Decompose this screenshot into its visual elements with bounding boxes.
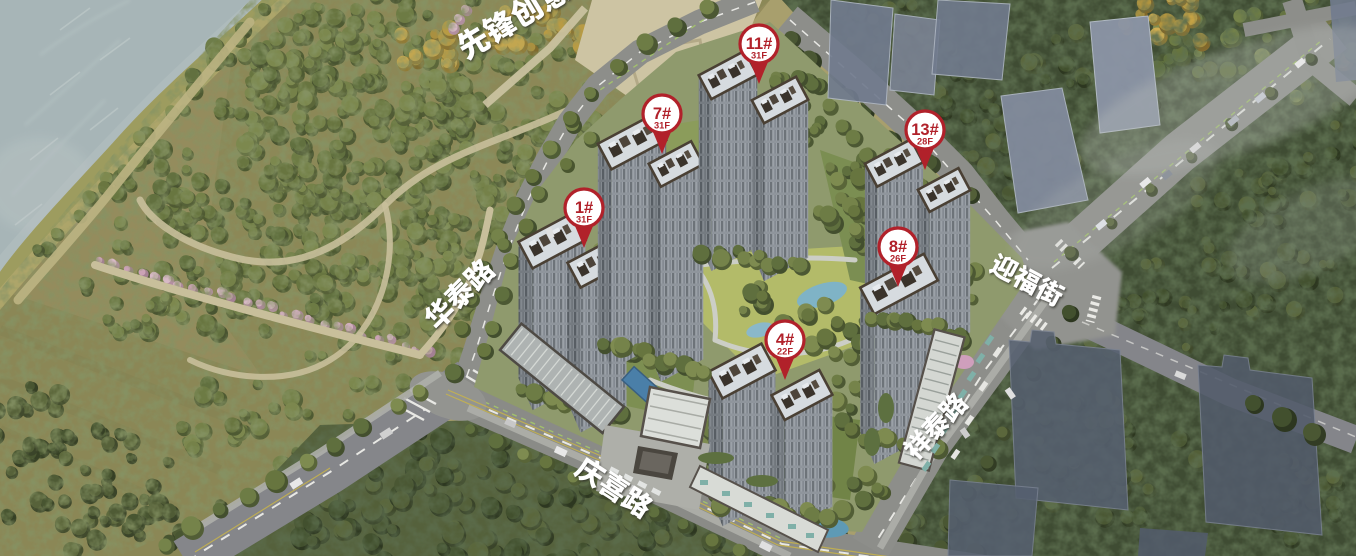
svg-text:31F: 31F	[751, 51, 767, 61]
svg-text:28F: 28F	[917, 137, 933, 147]
svg-text:26F: 26F	[890, 254, 906, 264]
svg-text:31F: 31F	[576, 215, 592, 225]
svg-text:31F: 31F	[654, 121, 670, 131]
svg-text:22F: 22F	[777, 347, 793, 357]
